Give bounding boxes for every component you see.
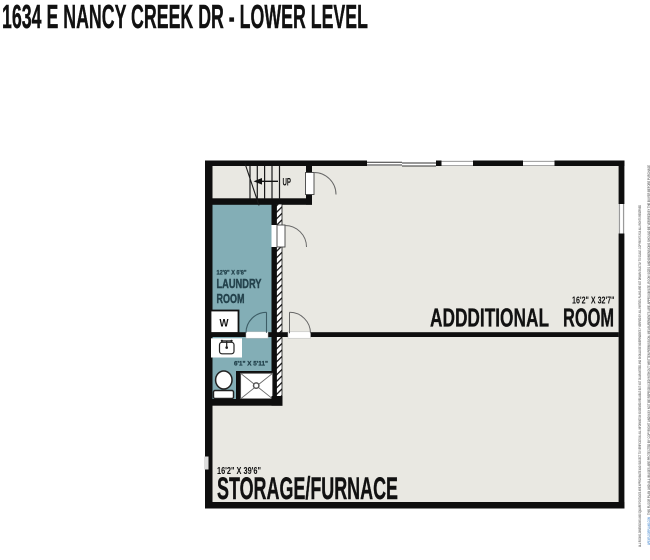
svg-text:ALL ROOMS, DIMENSIONS AND SQUA: ALL ROOMS, DIMENSIONS AND SQUARE FOOTAGE…	[638, 205, 642, 547]
svg-text:UP: UP	[283, 177, 292, 189]
svg-text:ROOM: ROOM	[217, 291, 245, 306]
svg-text:ROOM: ROOM	[563, 304, 614, 332]
svg-text:ADDDITIONAL: ADDDITIONAL	[430, 304, 549, 332]
svg-text:LAUNDRY: LAUNDRY	[217, 276, 262, 291]
svg-text:STORAGE/FURNACE: STORAGE/FURNACE	[217, 470, 398, 506]
svg-text:W: W	[220, 318, 230, 330]
svg-text:1634 E NANCY CREEK DR - LOWER: 1634 E NANCY CREEK DR - LOWER LEVEL	[2, 0, 368, 35]
svg-text:6'1" X 5'11": 6'1" X 5'11"	[234, 362, 268, 368]
